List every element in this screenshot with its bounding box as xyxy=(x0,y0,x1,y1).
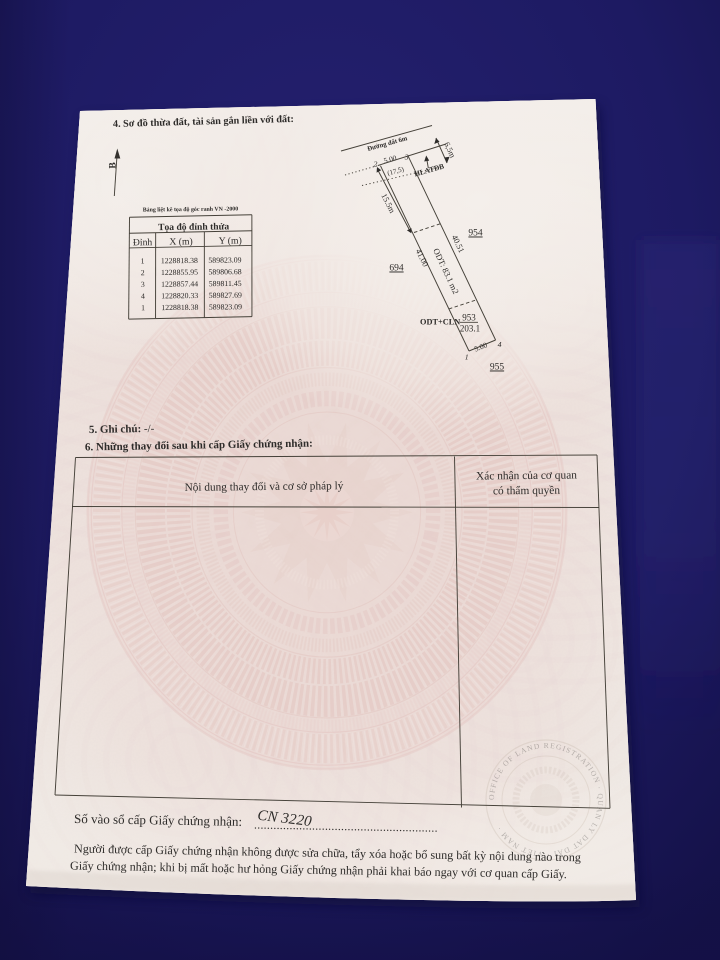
svg-text:1228855.95: 1228855.95 xyxy=(161,268,198,277)
svg-text:Y (m): Y (m) xyxy=(219,235,242,246)
svg-text:X (m): X (m) xyxy=(169,236,193,247)
svg-text:953: 953 xyxy=(462,313,476,323)
svg-text:Xác nhận của cơ quan: Xác nhận của cơ quan xyxy=(476,469,577,482)
svg-text:589811.45: 589811.45 xyxy=(209,279,242,288)
svg-text:694: 694 xyxy=(389,264,404,274)
svg-text:203.1: 203.1 xyxy=(460,324,480,334)
svg-text:B: B xyxy=(108,162,118,169)
svg-text:1228820.33: 1228820.33 xyxy=(161,291,198,300)
svg-text:955: 955 xyxy=(490,363,505,373)
svg-text:Số vào sổ cấp Giấy chứng nhận:: Số vào sổ cấp Giấy chứng nhận: xyxy=(74,811,242,829)
svg-text:2: 2 xyxy=(374,160,378,169)
svg-text:1: 1 xyxy=(141,303,145,312)
svg-text:5. Ghi chú: -/-: 5. Ghi chú: -/- xyxy=(89,423,155,436)
svg-text:1228818.38: 1228818.38 xyxy=(161,256,198,265)
svg-text:1: 1 xyxy=(465,353,469,362)
svg-text:Bảng liệt kê tọa độ góc ranh V: Bảng liệt kê tọa độ góc ranh VN -2000 xyxy=(143,206,239,213)
svg-text:589806.68: 589806.68 xyxy=(208,267,241,276)
svg-text:3: 3 xyxy=(141,280,145,289)
svg-text:954: 954 xyxy=(468,229,483,239)
svg-text:1228818.38: 1228818.38 xyxy=(161,303,198,312)
svg-text:1: 1 xyxy=(141,256,145,265)
svg-text:589823.09: 589823.09 xyxy=(209,302,242,311)
svg-text:2: 2 xyxy=(141,268,145,277)
svg-text:ODT+CLN: ODT+CLN xyxy=(420,318,460,327)
svg-text:Tọa độ đỉnh thửa: Tọa độ đỉnh thửa xyxy=(158,221,229,233)
svg-text:1228857.44: 1228857.44 xyxy=(161,279,198,288)
svg-text:Đỉnh: Đỉnh xyxy=(133,237,153,248)
svg-text:4: 4 xyxy=(498,340,502,349)
svg-text:có thẩm quyền: có thẩm quyền xyxy=(493,485,560,498)
svg-text:Nội dung thay đổi và cơ sở phá: Nội dung thay đổi và cơ sở pháp lý xyxy=(185,480,344,494)
svg-text:589823.09: 589823.09 xyxy=(208,255,241,264)
svg-text:589827.69: 589827.69 xyxy=(209,291,242,300)
svg-text:4: 4 xyxy=(141,292,145,301)
svg-text:3: 3 xyxy=(404,152,409,161)
